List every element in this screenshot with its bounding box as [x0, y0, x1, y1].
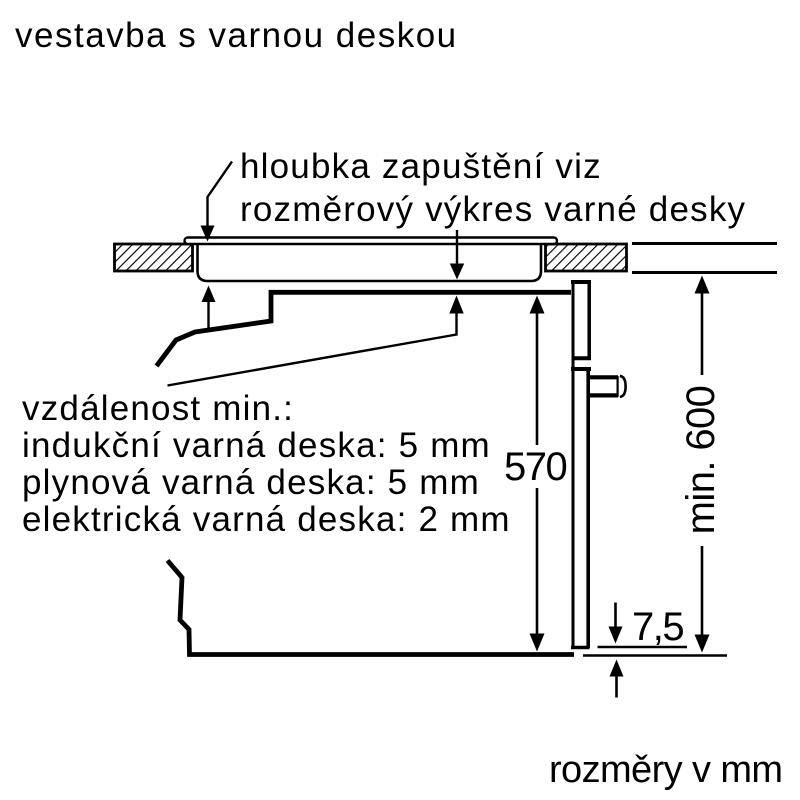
svg-text:indukční varná deska: 5 mm: indukční varná deska: 5 mm: [22, 426, 491, 465]
svg-text:rozměry v mm: rozměry v mm: [549, 749, 782, 791]
svg-text:elektrická varná deska: 2 mm: elektrická varná deska: 2 mm: [22, 500, 511, 539]
svg-text:hloubka zapuštění viz: hloubka zapuštění viz: [240, 147, 602, 186]
svg-text:vzdálenost min.:: vzdálenost min.:: [22, 389, 294, 428]
svg-text:570: 570: [504, 445, 566, 489]
svg-text:rozměrový výkres varné desky: rozměrový výkres varné desky: [240, 190, 746, 229]
svg-text:min. 600: min. 600: [679, 386, 723, 535]
svg-text:7,5: 7,5: [632, 605, 683, 649]
svg-text:vestavba s varnou deskou: vestavba s varnou deskou: [15, 16, 458, 55]
svg-text:plynová varná deska: 5 mm: plynová varná deska: 5 mm: [22, 463, 480, 502]
